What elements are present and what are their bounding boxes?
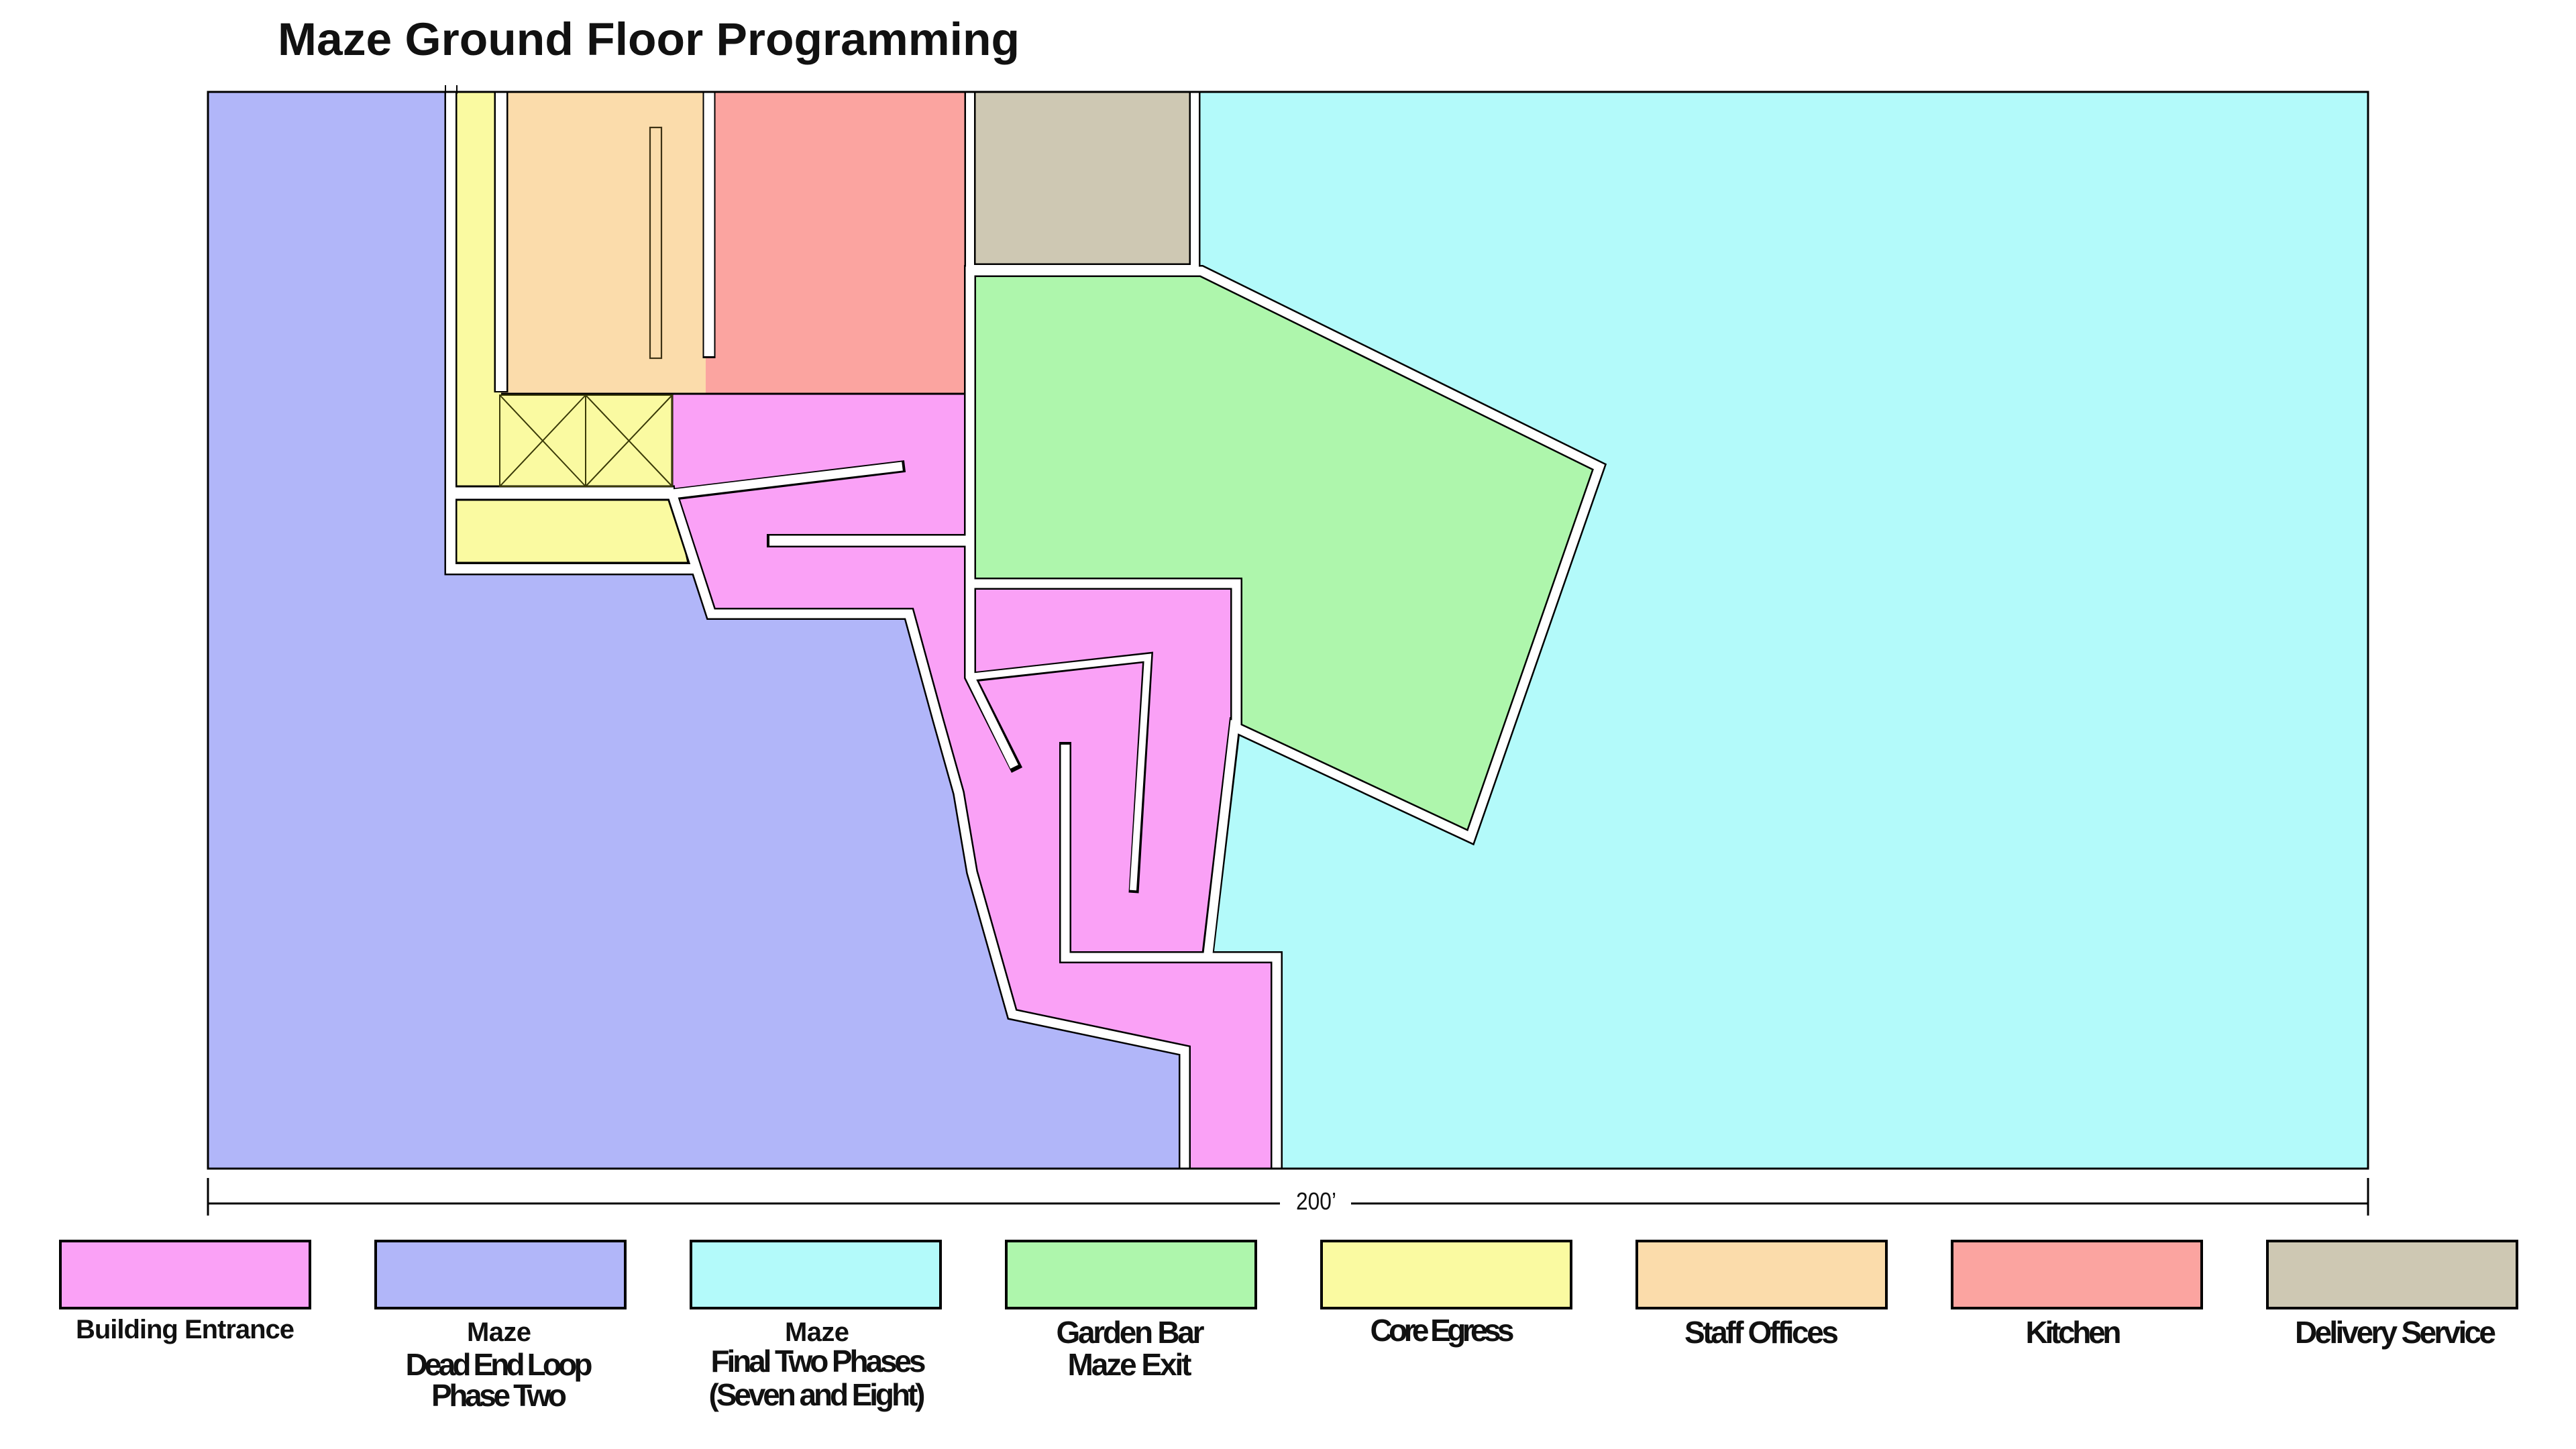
svg-text:Core Egress: Core Egress [1371,1313,1515,1348]
svg-text:Building Entrance: Building Entrance [76,1315,294,1344]
svg-text:Maze Exit: Maze Exit [1068,1347,1192,1382]
svg-text:Staff Offices: Staff Offices [1684,1315,1839,1350]
svg-text:(Seven and Eight): (Seven and Eight) [709,1377,926,1412]
svg-text:Garden Bar: Garden Bar [1057,1315,1205,1350]
svg-text:200’: 200’ [1296,1187,1336,1215]
svg-text:Kitchen: Kitchen [2026,1315,2122,1350]
svg-text:Maze Ground Floor Programming: Maze Ground Floor Programming [278,13,1020,65]
svg-text:Maze: Maze [467,1318,531,1347]
svg-text:Final Two Phases: Final Two Phases [711,1344,926,1379]
svg-text:Delivery Service: Delivery Service [2295,1315,2496,1350]
svg-text:Dead End Loop: Dead End Loop [406,1347,593,1382]
svg-text:Maze: Maze [785,1318,849,1347]
svg-text:Phase Two: Phase Two [431,1378,567,1413]
